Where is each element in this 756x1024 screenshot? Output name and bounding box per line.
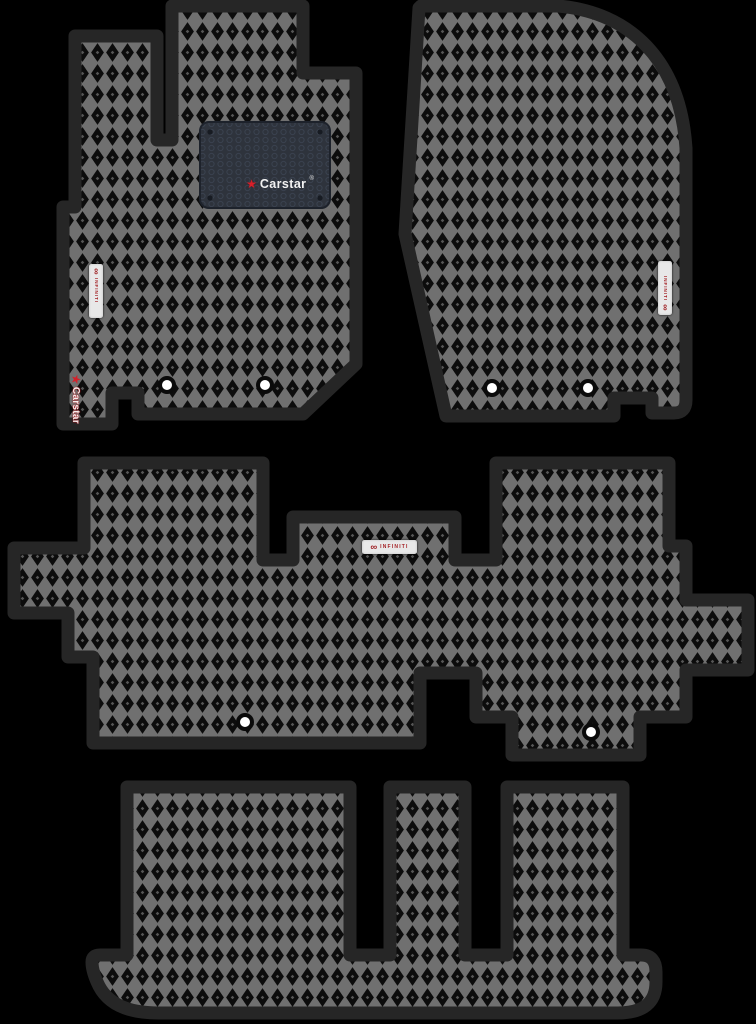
third-row-mat <box>92 787 656 1013</box>
fastener-hole <box>238 715 252 729</box>
fastener-hole <box>258 378 272 392</box>
infiniti-tag-front-left: ∞ INFINITI <box>89 264 103 318</box>
carstar-corner-label: ★ Carstar <box>66 369 86 429</box>
mat-set-graphic <box>0 0 756 1024</box>
carstar-star-icon: ★ <box>70 374 82 385</box>
infiniti-tag-text: INFINITI <box>380 545 409 550</box>
front-right-passenger-mat <box>405 6 686 416</box>
infiniti-tag-text: INFINITI <box>662 276 668 301</box>
front-left-driver-mat <box>63 6 356 424</box>
fastener-hole <box>581 381 595 395</box>
fastener-hole <box>584 725 598 739</box>
infiniti-logo-icon: ∞ <box>370 543 377 552</box>
fastener-hole <box>485 381 499 395</box>
carstar-corner-text: Carstar <box>71 387 82 424</box>
infiniti-tag-front-right: ∞ INFINITI <box>658 261 672 315</box>
fastener-hole <box>160 378 174 392</box>
heel-pad <box>200 122 330 208</box>
infiniti-tag-second-row: ∞ INFINITI <box>362 540 417 554</box>
infiniti-tag-text: INFINITI <box>93 278 99 303</box>
infiniti-logo-icon: ∞ <box>91 268 100 274</box>
product-photo-car-mat-set: ★ Carstar ® ★ Carstar ∞ INFINITI ∞ INFIN… <box>0 0 756 1024</box>
infiniti-logo-icon: ∞ <box>660 304 669 310</box>
second-row-mat <box>14 463 748 755</box>
